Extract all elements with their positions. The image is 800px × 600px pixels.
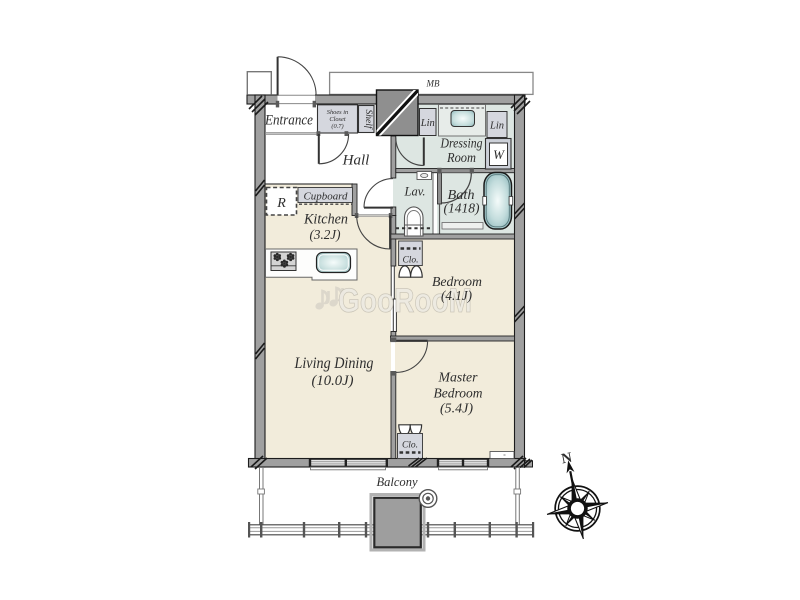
svg-text:(1418): (1418) [444,201,480,216]
svg-text:R: R [276,196,286,211]
svg-text:Bedroom: Bedroom [434,387,483,402]
svg-text:Lav.: Lav. [404,185,426,199]
svg-text:Balcony: Balcony [377,474,418,489]
svg-text:W: W [493,147,505,162]
svg-text:Dressing: Dressing [440,136,483,151]
svg-text:Lin: Lin [420,118,435,129]
svg-text:Kitchen: Kitchen [303,212,348,228]
svg-text:Clo.: Clo. [402,441,418,451]
svg-text:Clo.: Clo. [402,256,418,266]
svg-text:Lin: Lin [489,121,504,132]
svg-text:(4.1J): (4.1J) [441,288,472,303]
svg-text:Master: Master [438,371,479,386]
svg-text:Hall: Hall [342,153,370,169]
svg-text:Shelf: Shelf [363,110,374,130]
svg-text:Cupboard: Cupboard [304,192,349,203]
svg-text:(5.4J): (5.4J) [440,401,474,416]
svg-text:(0.7): (0.7) [331,123,343,130]
svg-text:(10.0J): (10.0J) [312,373,354,389]
svg-text:Room: Room [446,150,476,165]
svg-text:MB: MB [426,79,440,89]
svg-text:Living Dining: Living Dining [294,355,374,372]
svg-text:Entrance: Entrance [264,113,313,129]
svg-text:(3.2J): (3.2J) [310,228,341,243]
